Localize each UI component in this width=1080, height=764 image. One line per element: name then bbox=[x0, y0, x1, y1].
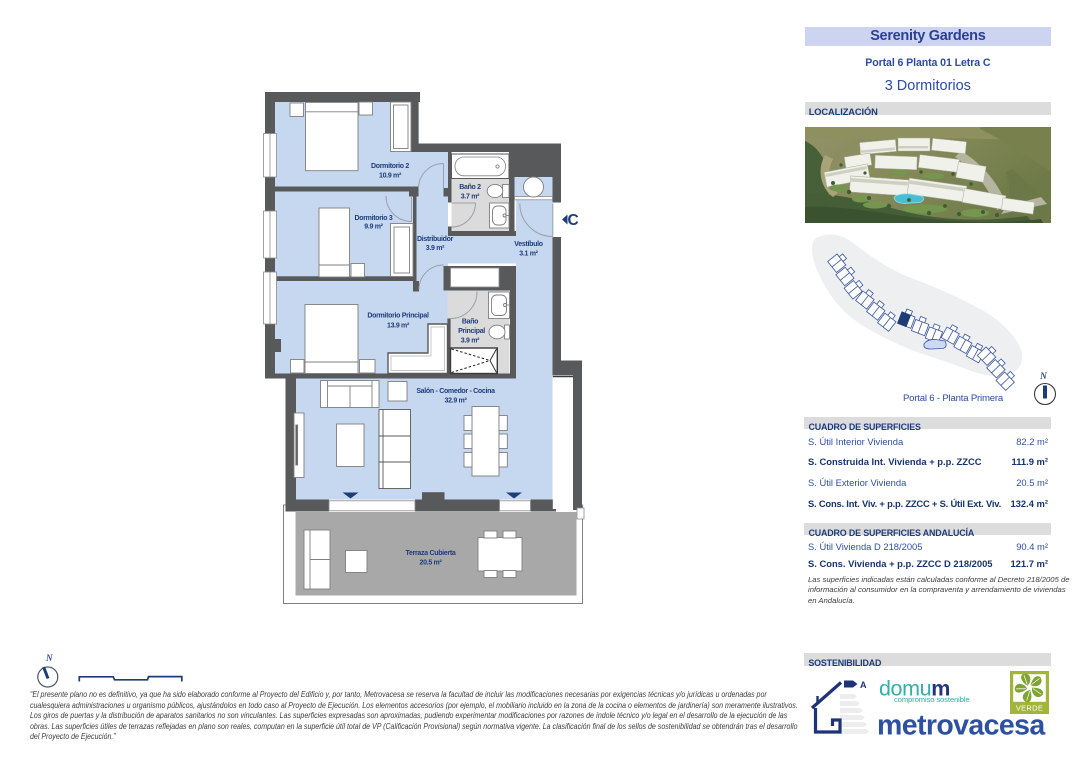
svg-text:A: A bbox=[860, 680, 867, 690]
svg-text:Dormitorio 3: Dormitorio 3 bbox=[354, 215, 392, 222]
svg-text:VERDE: VERDE bbox=[1016, 704, 1043, 713]
svg-text:compromiso sostenible: compromiso sostenible bbox=[894, 695, 970, 704]
svg-text:Baño: Baño bbox=[462, 319, 478, 326]
svg-text:Principal: Principal bbox=[458, 328, 485, 335]
svg-text:N: N bbox=[1039, 372, 1048, 382]
svg-text:20.5 m²: 20.5 m² bbox=[419, 560, 442, 567]
svg-text:Portal 6 - Planta Primera: Portal 6 - Planta Primera bbox=[903, 393, 1004, 404]
svg-text:9.9 m²: 9.9 m² bbox=[364, 224, 383, 231]
svg-text:Dormitorio Principal: Dormitorio Principal bbox=[367, 313, 429, 320]
svg-text:N: N bbox=[45, 653, 53, 663]
svg-text:Vestíbulo: Vestíbulo bbox=[514, 241, 542, 248]
svg-text:3.9 m²: 3.9 m² bbox=[461, 338, 480, 345]
svg-text:3.1 m²: 3.1 m² bbox=[519, 251, 538, 258]
svg-text:3.7 m²: 3.7 m² bbox=[461, 194, 480, 201]
svg-text:metrovacesa: metrovacesa bbox=[877, 710, 1046, 742]
svg-text:3.9 m²: 3.9 m² bbox=[426, 245, 445, 252]
svg-text:32.9 m²: 32.9 m² bbox=[444, 398, 467, 405]
svg-text:Salón - Comedor - Cocina: Salón - Comedor - Cocina bbox=[416, 388, 495, 395]
svg-text:13.9 m²: 13.9 m² bbox=[387, 323, 410, 330]
svg-text:Dormitorio 2: Dormitorio 2 bbox=[371, 163, 409, 170]
svg-text:C: C bbox=[568, 212, 579, 229]
svg-text:Terraza Cubierta: Terraza Cubierta bbox=[406, 550, 456, 557]
svg-text:Baño 2: Baño 2 bbox=[459, 184, 481, 191]
svg-text:10.9 m²: 10.9 m² bbox=[379, 173, 402, 180]
svg-text:Distribuidor: Distribuidor bbox=[417, 236, 454, 243]
